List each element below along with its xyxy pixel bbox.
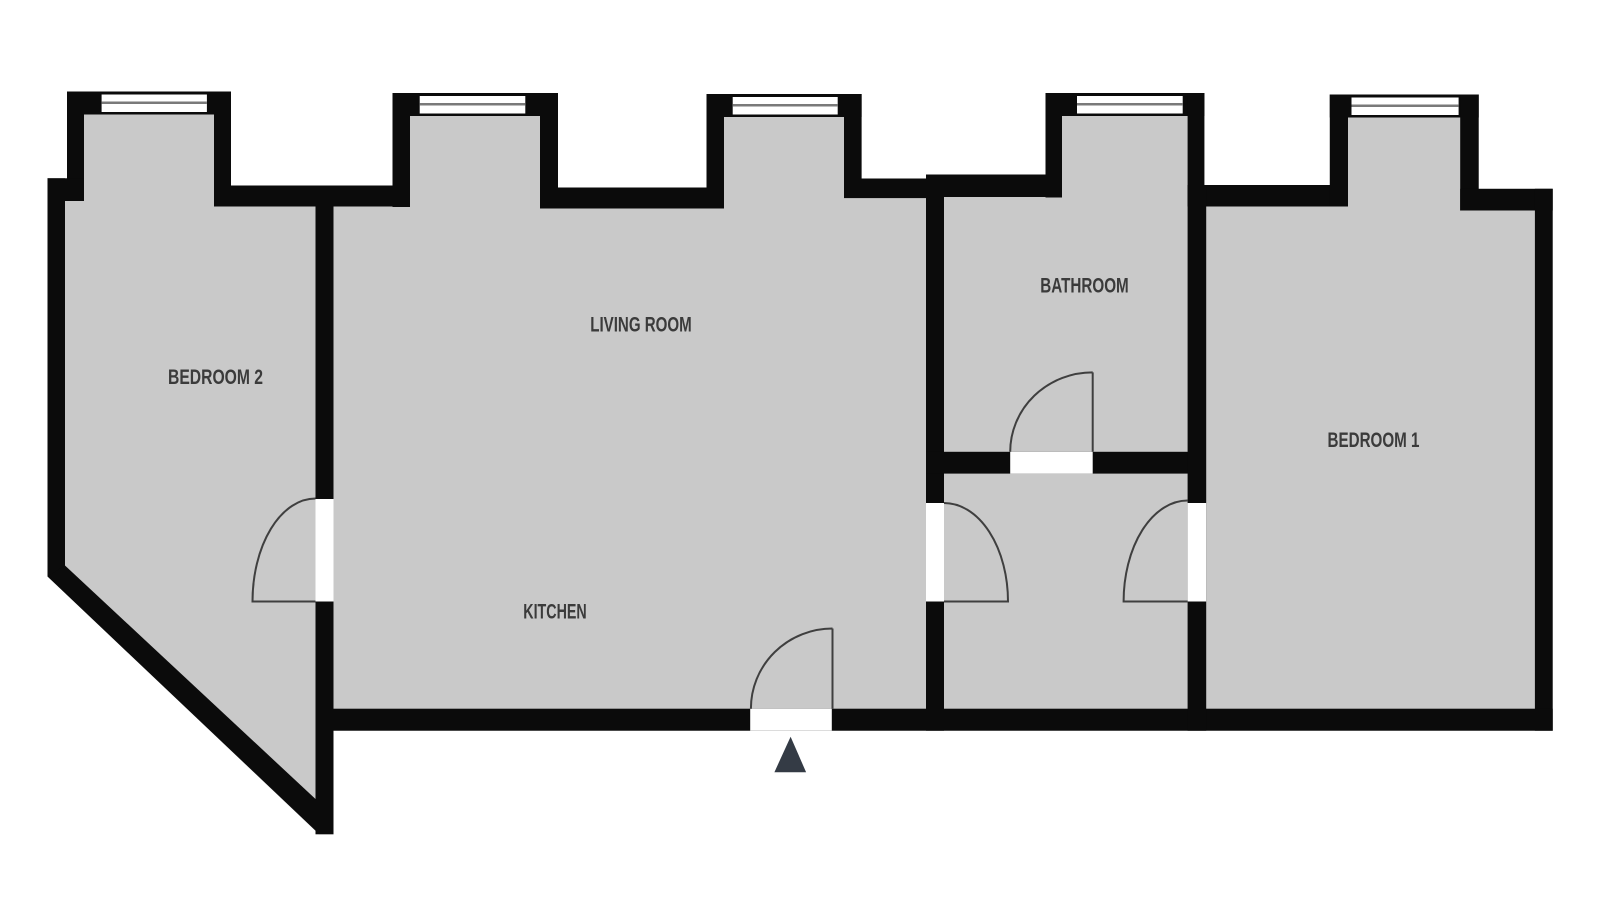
svg-text:BEDROOM 1: BEDROOM 1	[1328, 428, 1420, 452]
svg-text:KITCHEN: KITCHEN	[523, 600, 587, 624]
svg-text:BATHROOM: BATHROOM	[1040, 274, 1129, 298]
svg-text:BEDROOM 2: BEDROOM 2	[168, 365, 263, 389]
svg-text:LIVING ROOM: LIVING ROOM	[590, 313, 692, 337]
